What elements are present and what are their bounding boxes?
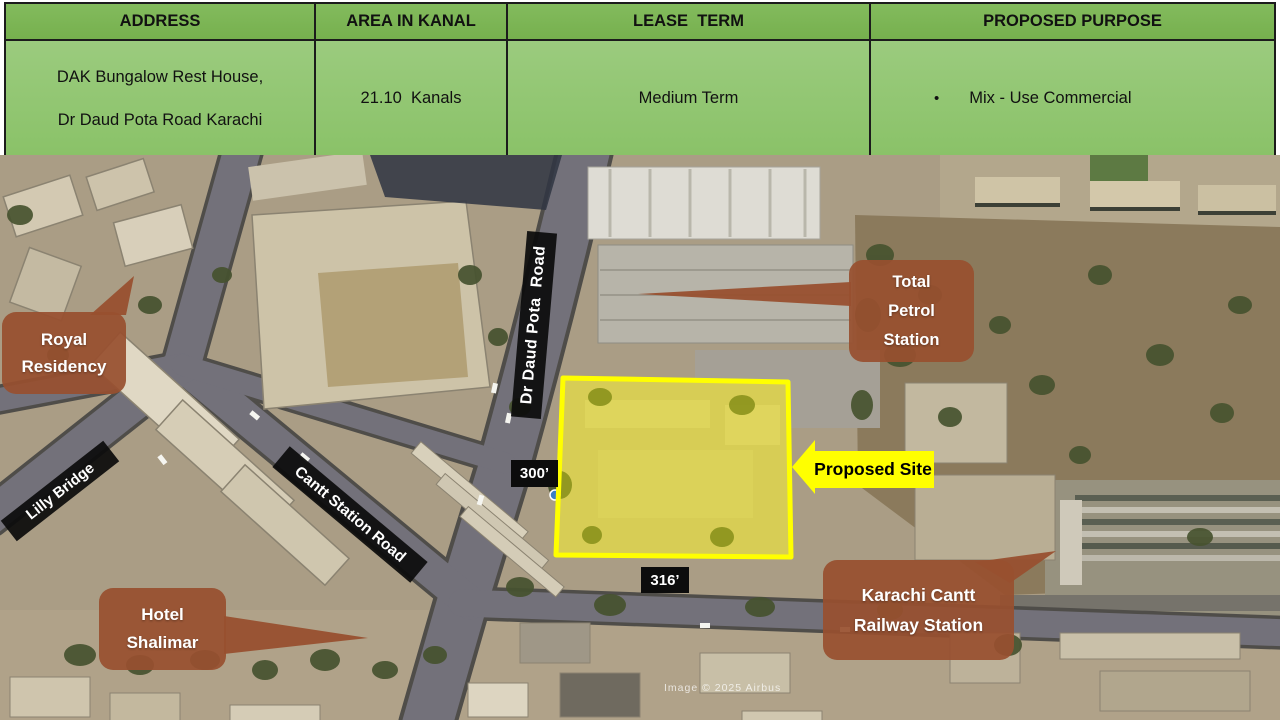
road-label-dr-daud-pota-road: Dr Daud Pota Road bbox=[511, 231, 557, 419]
callout-hotel-shalimar: Hotel Shalimar bbox=[99, 588, 226, 670]
purpose-text: Mix - Use Commercial bbox=[969, 89, 1131, 108]
callout-text-line: Railway Station bbox=[823, 610, 1014, 640]
callout-text-line: Residency bbox=[2, 353, 126, 380]
table-header-row: ADDRESS AREA IN KANAL LEASE TERM PROPOSE… bbox=[5, 3, 1275, 40]
table-data-row: DAK Bungalow Rest House, Dr Daud Pota Ro… bbox=[5, 40, 1275, 157]
address-line-2: Dr Daud Pota Road Karachi bbox=[7, 108, 313, 132]
royal-residency-callout-tail bbox=[90, 276, 134, 315]
header-proposed-purpose: PROPOSED PURPOSE bbox=[870, 3, 1275, 40]
callout-text-line: Shalimar bbox=[99, 629, 226, 657]
road-label-lilly-bridge: Lilly Bridge bbox=[1, 441, 119, 542]
callout-text-line: Karachi Cantt bbox=[823, 580, 1014, 610]
callout-text-line: Hotel bbox=[99, 601, 226, 629]
callout-total-petrol-station: Total Petrol Station bbox=[849, 260, 974, 362]
property-info-table: ADDRESS AREA IN KANAL LEASE TERM PROPOSE… bbox=[4, 2, 1276, 158]
bullet-glyph: • bbox=[934, 90, 939, 107]
measurement-300ft: 300’ bbox=[511, 460, 558, 487]
cell-lease-term: Medium Term bbox=[507, 40, 870, 157]
imagery-watermark: Image © 2025 Airbus bbox=[664, 682, 781, 694]
header-area: AREA IN KANAL bbox=[315, 3, 507, 40]
hotel-shalimar-callout-tail bbox=[224, 616, 368, 654]
cell-area: 21.10 Kanals bbox=[315, 40, 507, 157]
measurement-316ft: 316’ bbox=[641, 567, 689, 593]
callout-text-line: Petrol bbox=[849, 297, 974, 326]
address-line-1: DAK Bungalow Rest House, bbox=[7, 65, 313, 89]
road-label-cantt-station-road: Cantt Station Road bbox=[272, 446, 427, 582]
callout-text-line: Royal bbox=[2, 326, 126, 353]
proposed-site-boundary bbox=[556, 378, 791, 557]
cell-proposed-purpose: • Mix - Use Commercial bbox=[870, 40, 1275, 157]
proposed-site-label: Proposed Site bbox=[812, 451, 934, 488]
total-petrol-callout-tail bbox=[638, 282, 851, 306]
satellite-map: Royal Residency Total Petrol Station Hot… bbox=[0, 155, 1280, 720]
header-address: ADDRESS bbox=[5, 3, 315, 40]
callout-text-line: Total bbox=[849, 268, 974, 297]
cell-address: DAK Bungalow Rest House, Dr Daud Pota Ro… bbox=[5, 40, 315, 157]
callout-karachi-cantt-railway-station: Karachi Cantt Railway Station bbox=[823, 560, 1014, 660]
callout-royal-residency: Royal Residency bbox=[2, 312, 126, 394]
callout-text-line: Station bbox=[849, 326, 974, 355]
header-lease-term: LEASE TERM bbox=[507, 3, 870, 40]
slide: { "table": { "headers": ["ADDRESS", "ARE… bbox=[0, 0, 1280, 720]
